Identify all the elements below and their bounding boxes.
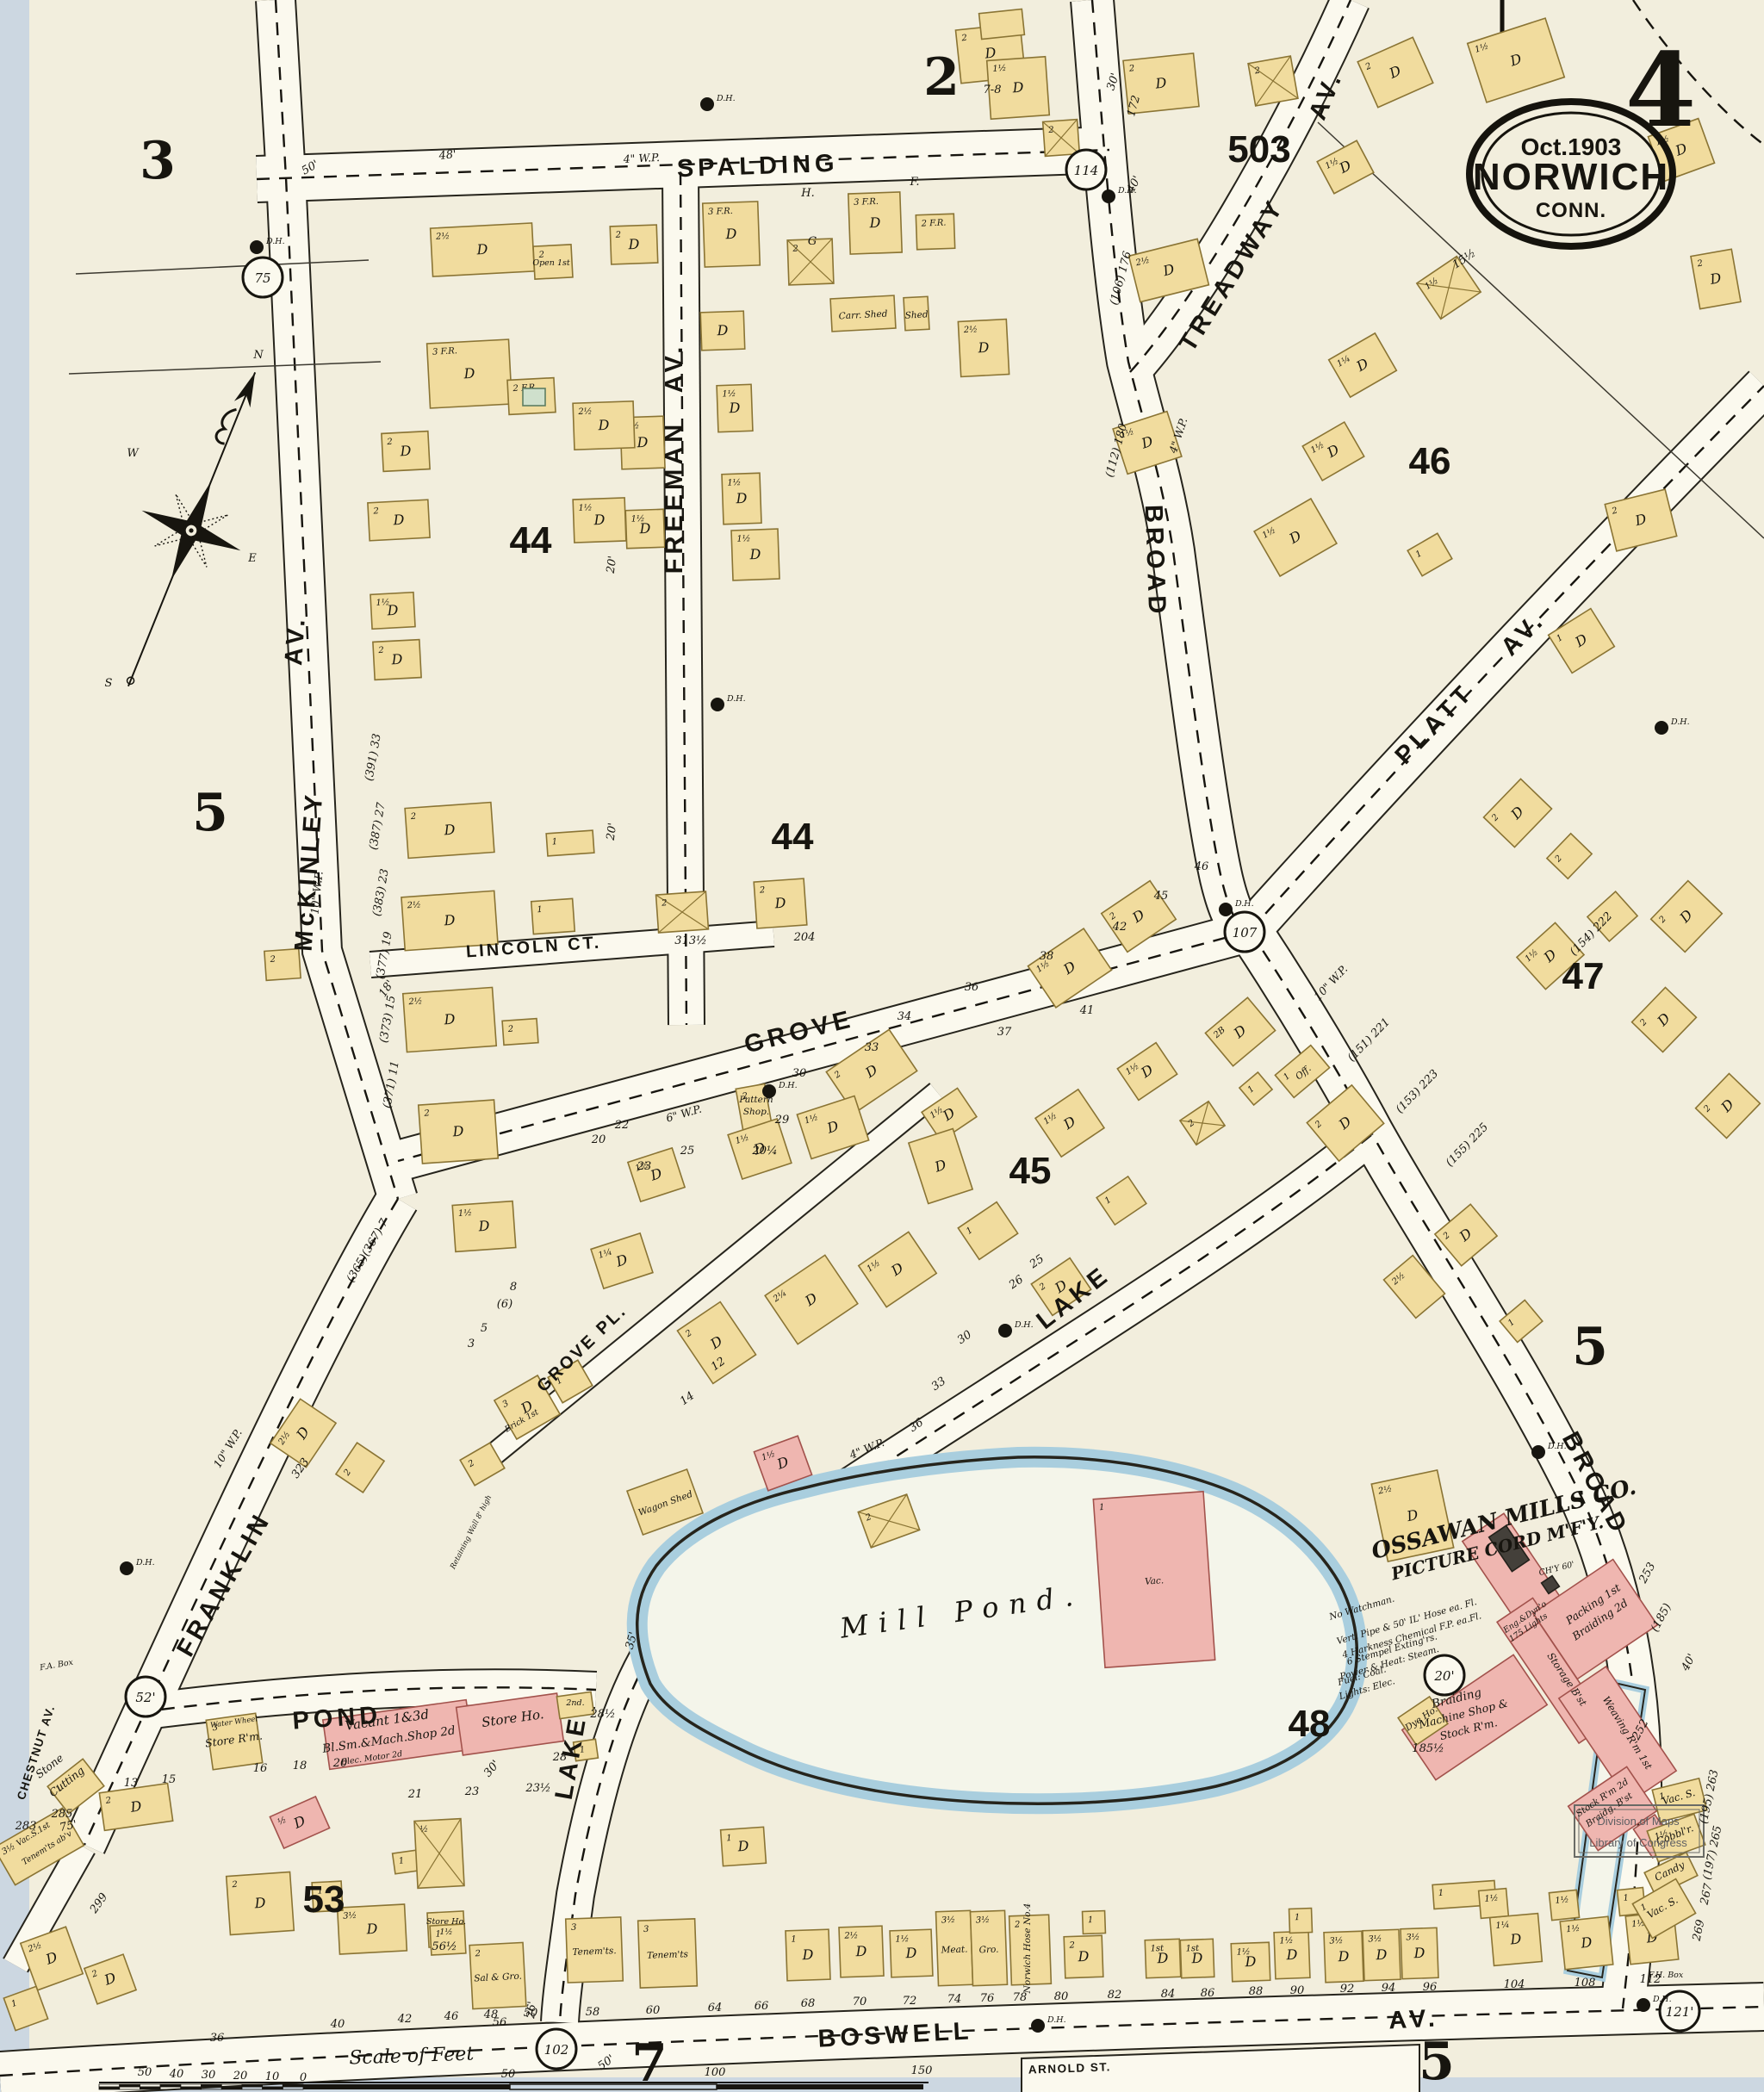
building [523, 388, 545, 406]
building-label: D [724, 226, 737, 242]
annotation-label: Norwich Hose No.4 [1022, 1903, 1033, 1995]
building-tenem-ts: Tenem'ts3 [638, 1919, 698, 1988]
building: 2 [656, 891, 709, 933]
building: D2 [1064, 1935, 1103, 1978]
scale-cell [242, 2084, 263, 2087]
building-stories: 2 [506, 1025, 513, 1034]
building: D1st [1180, 1939, 1214, 1977]
sanborn-map: D2D1½2D22D2½D1½D2D1½D1½1½D1¼D1½D1½1D2D1½… [0, 0, 1764, 2092]
building: 2 [502, 1019, 538, 1046]
scale-cell [99, 2087, 120, 2089]
screenshot-root: D2D1½2D22D2½D1½D2D1½D1½1½D1¼D1½D1½1D2D1½… [0, 0, 1764, 2092]
house-number: 185½ [1412, 1742, 1444, 1755]
building-stories: 3½ [976, 1915, 990, 1926]
building-label: D [399, 443, 412, 460]
building-vac-: Vac.1 [1093, 1492, 1214, 1667]
house-number: 18 [293, 1760, 307, 1772]
building-stories: 3 F.R. [708, 207, 733, 217]
building-stories: 3½ [1406, 1933, 1419, 1943]
building-label: D [735, 490, 748, 506]
building: D2½ [573, 401, 635, 450]
scale-tick: 20 [233, 2070, 248, 2083]
building-stories: 1½ [727, 478, 741, 488]
building: D2 [405, 803, 494, 859]
building-stories: 1 [537, 905, 543, 915]
scale-cell [263, 2087, 283, 2089]
building: D3½ [1401, 1927, 1438, 1978]
house-number: 16 [253, 1762, 268, 1775]
house-number: F. [909, 176, 919, 189]
building-stories: 1½ [376, 598, 390, 608]
building: D2 [227, 1872, 295, 1935]
building-label: D [597, 417, 610, 433]
scale-cell [120, 2084, 140, 2087]
annotation-label: Shop. [743, 1107, 769, 1117]
house-number: 28 [552, 1751, 568, 1764]
street-label-broad: BROAD [1140, 504, 1171, 618]
house-number: 64 [708, 2002, 723, 2014]
house-number: 60 [646, 2004, 661, 2017]
building-label: D [1011, 79, 1024, 96]
building-stories: 2 [474, 1949, 481, 1959]
building: D1st [1145, 1939, 1181, 1977]
svg-text:D.H.: D.H. [716, 94, 736, 103]
building-label: D [451, 1123, 464, 1140]
building-stories: 2 [614, 231, 621, 240]
building-label: D [475, 241, 488, 258]
building-label: D [801, 1946, 814, 1963]
building-label: D [716, 322, 729, 338]
building: D2 [368, 500, 430, 541]
stamp-text: Library of Congress [1589, 1836, 1687, 1849]
building-label: D [748, 546, 761, 562]
building: D1½ [890, 1929, 933, 1977]
building-stories: 1 [726, 1834, 732, 1843]
building: D3½ [338, 1904, 407, 1954]
house-number: 88 [1249, 1985, 1264, 1998]
building-label: D [390, 651, 403, 668]
annotation-label: 1½ [439, 1927, 452, 1937]
compass-letter: N [252, 349, 264, 362]
street-label-spalding: SPALDING [676, 150, 839, 183]
building-label: D [977, 339, 990, 357]
building-stories: 2 [409, 812, 416, 822]
house-number: 41 [1079, 1004, 1095, 1017]
building-stories: 1½ [992, 64, 1007, 74]
street-width-label: 20' [605, 823, 620, 842]
building-label: D [627, 236, 640, 252]
building-label: D [128, 1797, 143, 1816]
building-label: D [443, 822, 456, 839]
building-label: D [463, 365, 475, 382]
block-number: 44 [772, 816, 814, 858]
building-label: D [1375, 1946, 1388, 1963]
svg-text:D.H.: D.H. [265, 237, 285, 246]
building-stories: 3 F.R. [854, 197, 879, 208]
house-number: 84 [1161, 1988, 1176, 2001]
building-label: D [773, 895, 786, 912]
building-label: D [736, 1838, 749, 1855]
house-number: 92 [1340, 1983, 1355, 1996]
house-number: 86 [1201, 1987, 1215, 2000]
building-label: D [392, 512, 405, 529]
building-stories: 1½ [1566, 1924, 1581, 1935]
building-stories: 1½ [630, 514, 644, 525]
house-number: 74 [947, 1993, 962, 2006]
building-stories: 2½ [435, 232, 450, 242]
building-stories: 2½ [843, 1931, 858, 1941]
building-label: D [253, 1895, 266, 1912]
building-label: Shed [904, 309, 929, 320]
house-number: 23 [637, 1160, 652, 1173]
building-stories: 2 [960, 34, 967, 44]
building-label: D [1285, 1946, 1298, 1963]
adjacent-sheet-number: 5 [1419, 2032, 1455, 2092]
sheet-number: 4 [1625, 30, 1696, 150]
annotation-label: Store Ho. [426, 1917, 466, 1927]
building-stories: 1½ [1555, 1895, 1569, 1906]
house-number: 40 [330, 2018, 345, 2031]
house-number: 66 [755, 2000, 769, 2013]
svg-text:D.H.: D.H. [1014, 1320, 1034, 1330]
house-number: 56½ [432, 1940, 457, 1953]
house-number: 94 [1382, 1982, 1396, 1995]
building: D3½ [1324, 1931, 1363, 1983]
building-meat-: Meat.3½ [936, 1910, 973, 1985]
block-number: 503 [1227, 128, 1290, 171]
building: D3½ [1363, 1929, 1401, 1980]
house-number: 23½ [525, 1782, 550, 1795]
svg-text:75: 75 [254, 270, 270, 286]
building-carr-shed: Carr. Shed [830, 295, 896, 332]
adjacent-sheet-number: 5 [1572, 1317, 1608, 1377]
building-label: D [443, 912, 456, 929]
building-stories: 1½ [1484, 1894, 1499, 1904]
building: D2½ [431, 223, 535, 276]
building: D2½ [403, 987, 496, 1052]
building-stories: 1¼ [1495, 1921, 1510, 1931]
house-number: 22 [614, 1119, 630, 1132]
building-stories: 2 [231, 1880, 238, 1890]
street-width-label: 20' [605, 556, 620, 575]
scale-cell [140, 2087, 160, 2089]
street-label-freeman: FREEMAN [661, 420, 688, 574]
house-number: 46 [1194, 860, 1209, 873]
building: 2 [1248, 56, 1298, 106]
house-number: 45 [1153, 890, 1169, 903]
building-stories: 1½ [1279, 1936, 1293, 1946]
building: D2½ [958, 320, 1009, 377]
building-label: D [636, 434, 649, 450]
house-number: 36 [210, 2032, 225, 2045]
hydrant-circle: 75 [243, 258, 283, 297]
house-number: 20¼ [751, 1145, 777, 1158]
building-stories: 2½ [577, 407, 592, 417]
adjacent-sheet-number: 5 [192, 783, 228, 843]
building-sal-gro-: Sal & Gro.2 [469, 1942, 526, 2008]
building: D1¼ [1490, 1914, 1543, 1966]
block-number: 47 [1562, 955, 1605, 997]
building-stories: 1½ [722, 389, 736, 400]
building-stories: 2 [759, 885, 766, 895]
house-number: 15 [162, 1773, 177, 1786]
building-label: Meat. [940, 1944, 967, 1955]
building-stories: 2 [386, 438, 393, 447]
building-label: D [593, 512, 606, 528]
building: D3 F.R. [703, 202, 761, 267]
street-label-av: AV. [661, 343, 688, 394]
building: D1½ [1560, 1916, 1613, 1970]
scale-tick: 50 [501, 2068, 516, 2081]
svg-text:52': 52' [135, 1690, 155, 1705]
house-number: 28½ [589, 1708, 615, 1721]
house-number: 58 [586, 2006, 600, 2019]
house-number: 90 [1290, 1984, 1305, 1997]
building-label: D [1413, 1945, 1425, 1961]
building: D1 [786, 1929, 830, 1981]
water-pipe-label: 4" W.P. [622, 151, 660, 165]
building-stories: 2 [792, 244, 798, 253]
house-number: G [808, 235, 817, 248]
compass-letter: S [105, 677, 113, 690]
building-stories: 1 [791, 1934, 797, 1944]
house-number: 104 [1504, 1978, 1525, 1991]
building-label: Gro. [978, 1945, 998, 1956]
building-label: D [365, 1921, 378, 1938]
scale-tick: 30 [202, 2069, 216, 2082]
building: D1½ [731, 529, 780, 580]
building-stories: 2 F.R. [920, 219, 946, 229]
house-number: 23 [464, 1785, 480, 1798]
block-number: 45 [1009, 1150, 1052, 1192]
building: D1½ [452, 1201, 516, 1252]
building: D2 [610, 225, 658, 264]
building-label: Tenem'ts. [572, 1946, 617, 1958]
annotation-label: Pattern [738, 1095, 773, 1105]
scale-tick: 50 [138, 2066, 152, 2079]
svg-text:121': 121' [1666, 2004, 1694, 2020]
house-number: 29 [774, 1114, 790, 1127]
house-number: 72 [903, 1995, 917, 2008]
house-number: 37 [997, 1026, 1012, 1039]
building-stories: 3½ [941, 1915, 955, 1926]
title-state: CONN. [1536, 199, 1606, 222]
house-number: 50 [524, 2007, 538, 2020]
scale-tick: 10 [265, 2070, 280, 2083]
building-stories: 1st [1150, 1944, 1165, 1954]
building: D1½ [722, 473, 761, 525]
building-label: D [1337, 1948, 1350, 1965]
house-number: 285 [51, 1808, 73, 1821]
building-stories: 2 [1127, 64, 1134, 74]
house-number: 76 [980, 1992, 995, 2005]
building-stories: 2 [1047, 126, 1054, 135]
house-number: 313½ [674, 934, 706, 947]
house-number: 34 [898, 1010, 912, 1023]
scale-cell [160, 2084, 181, 2087]
house-number: 20 [591, 1133, 606, 1146]
building: D2 [382, 431, 430, 472]
building: 2 [264, 949, 301, 981]
building-stories: 2 [269, 955, 276, 965]
building: D2 [419, 1100, 499, 1164]
building-stories: 1 [551, 837, 557, 847]
building: 2 [1043, 120, 1080, 157]
building-label: D [1580, 1934, 1593, 1951]
building: 1½ [1549, 1890, 1579, 1920]
adjacent-sheet-number: 7 [631, 2033, 668, 2092]
hydrant-circle: 114 [1066, 150, 1106, 189]
adjacent-sheet-number: 3 [140, 131, 176, 191]
building-label: D [1154, 74, 1168, 91]
building: D3 F.R. [848, 192, 902, 254]
svg-text:20': 20' [1433, 1668, 1454, 1684]
building-stories: 1½ [458, 1208, 473, 1219]
svg-text:107: 107 [1233, 925, 1258, 940]
building-label: D [1077, 1948, 1090, 1965]
annotation-label: 2nd. [565, 1698, 584, 1708]
building-shed: Shed [904, 296, 929, 330]
building-stories: 2 [377, 646, 384, 655]
house-number: 70 [853, 1996, 867, 2008]
building: D [700, 311, 745, 351]
building: D2½ [839, 1926, 884, 1977]
building-stories: 2½ [406, 900, 421, 910]
building: 1 [546, 830, 594, 856]
scale-cell [202, 2084, 222, 2087]
house-number: 46 [444, 2010, 459, 2023]
building: D1 [721, 1827, 767, 1865]
building-label: Tenem'ts [647, 1949, 689, 1961]
building: D2 [1691, 249, 1741, 308]
building: 2 F.R. [916, 214, 954, 250]
building: 1 [531, 898, 575, 934]
hydrant-circle: 52' [126, 1677, 165, 1716]
building-stories: 2 [1068, 1940, 1075, 1950]
street-width-label: 48' [438, 148, 457, 163]
block-number: 46 [1409, 440, 1451, 482]
svg-text:D.H.: D.H. [1670, 717, 1690, 727]
house-number: 13 [124, 1777, 139, 1790]
house-number: 96 [1423, 1981, 1438, 1994]
house-number: 25 [680, 1145, 695, 1158]
building-stories: 2 [1014, 1920, 1021, 1929]
compass-letter: E [247, 552, 257, 565]
building: 1 [1083, 1911, 1106, 1934]
hydrant-circle: 20' [1425, 1655, 1464, 1695]
svg-text:D.H.: D.H. [1652, 1995, 1672, 2004]
svg-text:D.H.: D.H. [135, 1558, 155, 1567]
stamp-text: Division of Maps [1597, 1815, 1680, 1828]
building-stories: 1st [1185, 1944, 1200, 1954]
street-label-av: AV. [280, 614, 311, 667]
house-number: 3 [468, 1338, 475, 1350]
building-label: D [1509, 1930, 1523, 1947]
svg-text:D.H.: D.H. [1234, 899, 1254, 909]
building: D1½ [1274, 1931, 1310, 1978]
scale-tick: 0 [300, 2071, 307, 2084]
block-number: 48 [1289, 1703, 1331, 1745]
scale-title: Scale of Feet [349, 2043, 475, 2069]
building-stories: 1½ [1236, 1947, 1250, 1958]
building-stories: 2 [104, 1796, 112, 1806]
hydrant-circle: 107 [1225, 912, 1264, 952]
hydrant-circle: 102 [537, 2029, 576, 2069]
building-stories: 3½ [1329, 1936, 1343, 1946]
house-number: 33 [865, 1041, 879, 1054]
building: D2 [754, 878, 807, 928]
scale-tick: 40 [169, 2068, 184, 2081]
house-number: (6) [497, 1298, 512, 1311]
building-stories: 3½ [1368, 1934, 1382, 1945]
building: D1½ [370, 593, 415, 630]
svg-text:102: 102 [544, 2042, 569, 2058]
block-number: 53 [303, 1878, 345, 1921]
house-number: 38 [1040, 950, 1054, 963]
house-number: 82 [1108, 1989, 1122, 2002]
building-label: D [868, 214, 881, 231]
building-label: D [854, 1943, 867, 1959]
building-stories: 2 [372, 506, 379, 516]
building-stories: 2½ [407, 996, 423, 1007]
building-stories: 1 [1295, 1913, 1301, 1922]
building-stories: 1½ [578, 503, 592, 513]
building-stories: 2 [661, 898, 668, 908]
scale-cell [181, 2087, 202, 2089]
house-number: 36 [965, 981, 979, 994]
building: ½ [414, 1819, 464, 1889]
building-label: D [984, 44, 997, 61]
building: D2 [373, 640, 421, 680]
building: D1½ [1231, 1942, 1270, 1982]
house-number: 68 [801, 1997, 816, 2010]
house-number: 204 [793, 931, 816, 944]
house-number: 42 [397, 2013, 413, 2026]
scale-tick: 100 [705, 2066, 726, 2079]
building: 1½ [1479, 1889, 1509, 1919]
building-stories: 2½ [963, 325, 978, 335]
building-label: Vac. [1145, 1575, 1165, 1587]
title-city: NORWICH [1473, 156, 1669, 198]
building-label: D [477, 1218, 490, 1235]
svg-text:D.H.: D.H. [1047, 2015, 1066, 2025]
house-number: 56 [493, 2016, 507, 2029]
svg-text:D.H.: D.H. [778, 1081, 798, 1090]
scale-cell [283, 2084, 303, 2087]
scale-cell [221, 2087, 242, 2089]
building-stories: 3 [643, 1925, 649, 1934]
building-stories: 3 [571, 1923, 577, 1933]
annotation-label: F.H. Box [1648, 1971, 1684, 1980]
house-number: 30 [792, 1067, 807, 1080]
building-label: D [728, 400, 741, 416]
building: 1 [1289, 1909, 1313, 1934]
building-stories: ½ [419, 1825, 428, 1834]
building: D1½ [625, 509, 665, 549]
adjacent-sheet-number: 2 [923, 47, 960, 108]
building: D3 F.R. [427, 339, 512, 408]
house-number: H. [800, 187, 814, 200]
house-number: 7-8 [984, 84, 1002, 96]
building-stories: 1 [1099, 1503, 1105, 1512]
building-stories: 1½ [895, 1934, 909, 1945]
building-label: D [904, 1945, 917, 1961]
building-tenem-ts-: Tenem'ts.3 [566, 1917, 624, 1983]
house-number: 8 [510, 1281, 517, 1294]
building-stories: 1 [1438, 1889, 1444, 1898]
house-number: 21 [407, 1788, 423, 1801]
house-number: 80 [1054, 1990, 1069, 2003]
